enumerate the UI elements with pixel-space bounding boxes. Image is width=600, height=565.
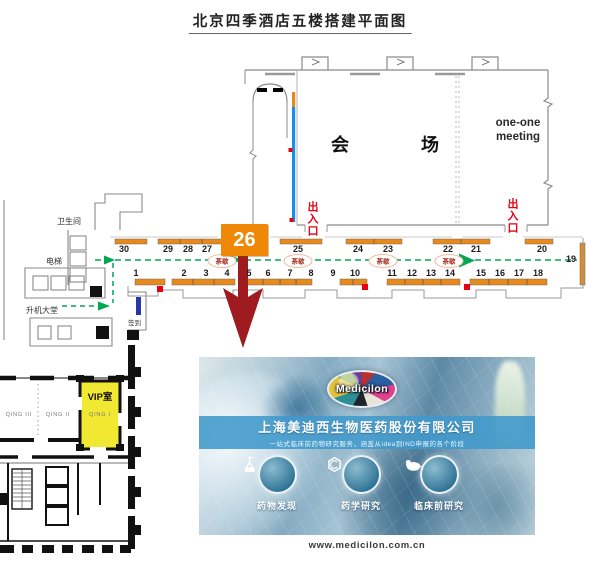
one-one-meeting-label: one-one meeting [480,116,556,145]
vip-label: VIP室 [88,391,113,403]
qing3-label: QING III [6,412,33,418]
lift-lobby-label: 升机大堂 [26,305,58,315]
medicilon-logo: Medicilon [327,370,397,408]
booth-number: 17 [514,268,524,278]
booth-number: 29 [163,244,173,254]
service-item: 药物发现 [241,455,313,512]
service-icons-row: 药物发现药学研究临床前研究 [199,455,535,515]
booth-number: 21 [471,244,481,254]
booth-number: 22 [443,244,453,254]
tea-break-label: 茶歇 [215,257,230,266]
signin-desk [136,297,141,315]
qing2-label: QING II [46,412,70,418]
fire-point [362,284,368,290]
booth-number: 9 [330,268,335,278]
tea-break-label: 茶歇 [291,257,306,266]
booth-number: 15 [476,268,486,278]
fire-point [464,284,470,290]
booth-number: 10 [350,268,360,278]
bottom-booth-numbers: 123456789101112131415161718 [133,268,543,278]
inset-plan: VIP室 QING I QING II QING III [0,345,165,565]
flask-icon [258,455,297,494]
booth-number: 4 [224,268,229,278]
booth-number: 13 [426,268,436,278]
service-item: 药学研究 [325,455,397,512]
company-name: 上海美迪西生物医药股份有限公司 [258,417,476,436]
flyer-canvas: 北京四季酒店五楼搭建平面图 [0,0,600,565]
wall-column [127,330,139,340]
company-strip: 上海美迪西生物医药股份有限公司 一站式临床前药物研究服务，涵盖从idea到IND… [199,416,535,449]
wall-column [90,286,102,297]
booth-number: 16 [495,268,505,278]
booth-number: 14 [445,268,455,278]
molecule-icon [342,455,381,494]
booth-number: 28 [183,244,193,254]
booth-number: 25 [293,244,303,254]
wall-column [96,326,109,339]
stage-blue-line [292,107,295,222]
booth-number: 6 [265,268,270,278]
fire-point [157,286,163,292]
company-tagline: 一站式临床前药物研究服务，涵盖从idea到IND申报的各个阶段 [270,438,465,448]
top-booth-numbers: 3029282725242322212019 [119,244,576,264]
door-gap [118,413,122,426]
service-label: 临床前研究 [414,499,464,512]
restroom-label: 卫生间 [57,216,81,226]
website-url: www.medicilon.com.cn [199,540,535,551]
featured-booth-26: 26 [221,224,268,256]
stage-orange-tick [292,92,295,107]
tea-break-label: 茶歇 [376,257,391,266]
booth-number: 23 [383,244,393,254]
booth-number: 5 [246,268,251,278]
booth-number: 3 [203,268,208,278]
mouse-icon [420,455,459,494]
booth-number: 19 [566,254,576,264]
signin-label: 签到 [128,318,141,327]
booth-number: 12 [407,268,417,278]
medicilon-banner: Medicilon 上海美迪西生物医药股份有限公司 一站式临床前药物研究服务，涵… [199,357,535,535]
booth-number: 20 [537,244,547,254]
booth-number: 18 [533,268,543,278]
door-gap [78,397,82,410]
stage-marker [289,148,293,152]
entrance-label: 出入口 [506,198,517,234]
service-label: 药学研究 [341,499,381,512]
service-item: 临床前研究 [403,455,475,512]
stage-marker [290,218,294,222]
service-label: 药物发现 [257,499,297,512]
booth-bars-bottom [135,279,547,285]
door-gap [90,447,106,451]
booth-number: 2 [181,268,186,278]
booth-number: 8 [308,268,313,278]
logo-text: Medicilon [336,383,388,395]
booth-number: 27 [202,244,212,254]
booth-number: 11 [387,268,397,278]
booth-number: 30 [119,244,129,254]
booth-number: 7 [287,268,292,278]
elevator-label: 电梯 [46,256,62,266]
qing1-label: QING I [89,412,111,418]
entrance-label: 出入口 [306,201,317,237]
booth-number: 24 [353,244,363,254]
tea-break-label: 茶歇 [442,257,457,266]
booth-number: 1 [133,268,138,278]
